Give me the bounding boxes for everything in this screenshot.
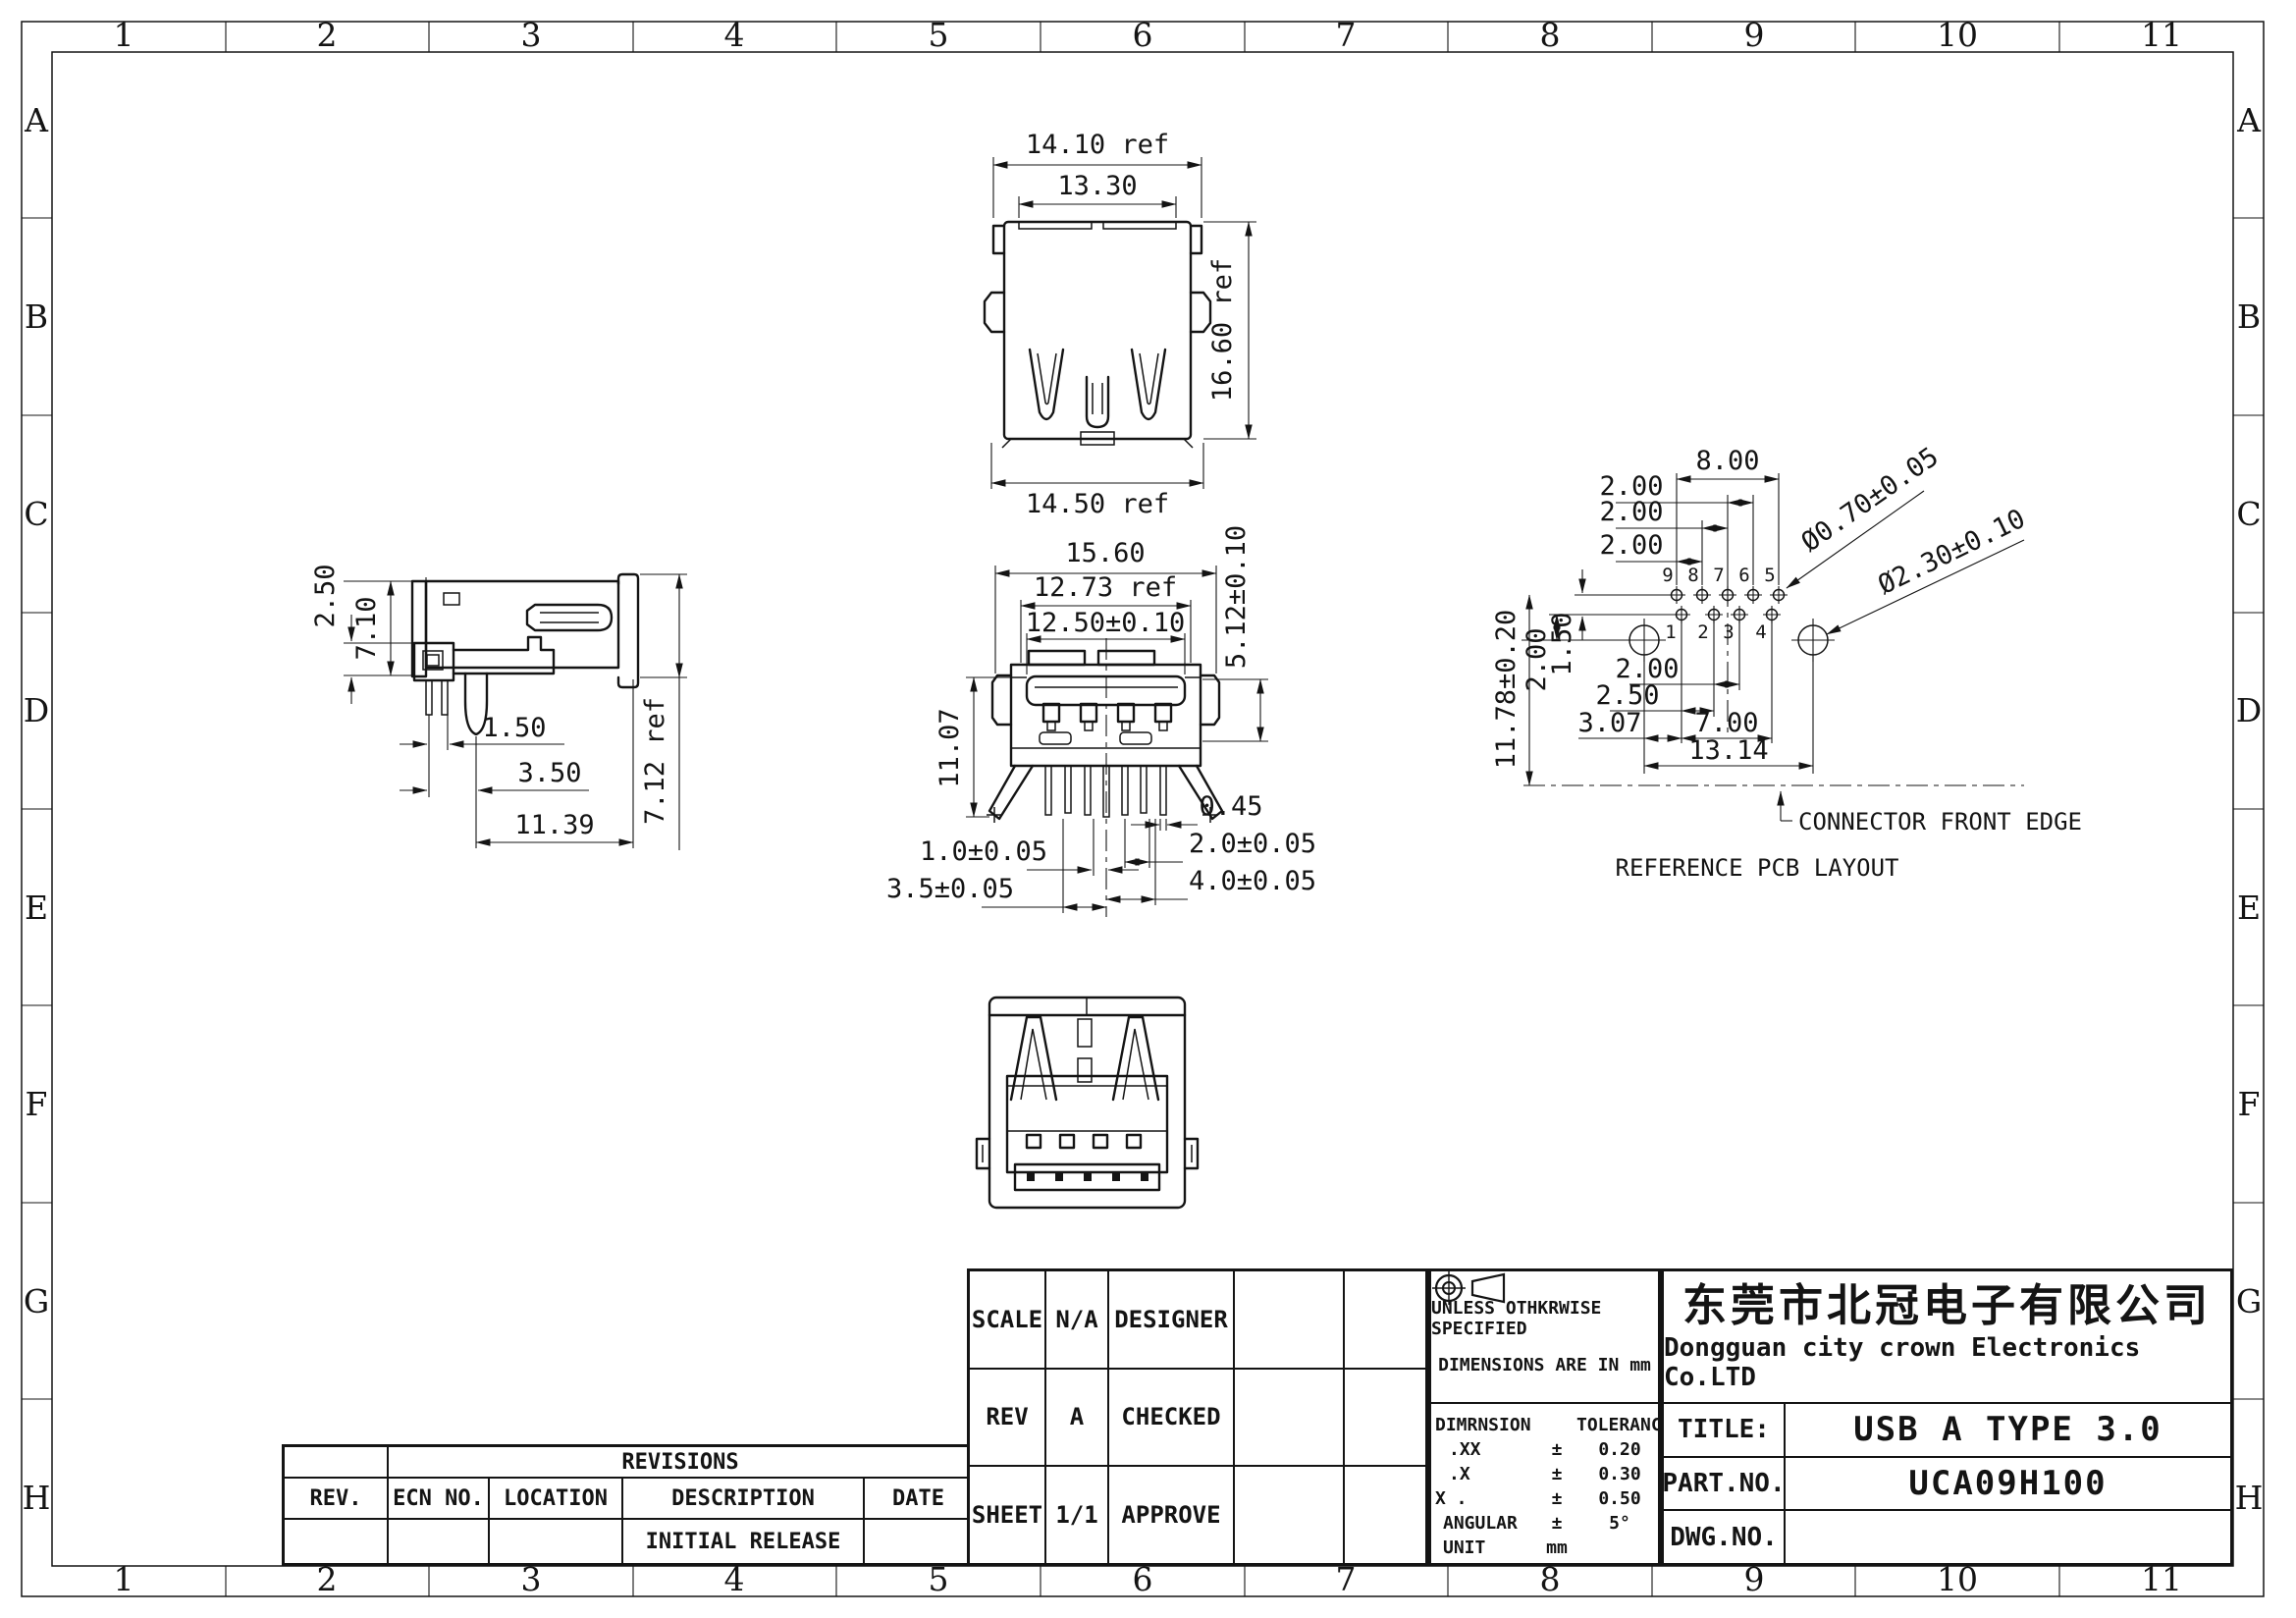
dim-label: 14.50 ref (1026, 489, 1169, 519)
dim-label: 12.50±0.10 (1026, 608, 1186, 638)
revisions-diagonal-cell (285, 1447, 387, 1477)
dim-label: 3.50 (517, 758, 581, 788)
title-block-approvals: SCALE N/A DESIGNER REV A CHECKED SHEET 1… (967, 1268, 1428, 1566)
grid-row-label: F (2238, 1085, 2261, 1123)
revisions-header-rev: REV. (285, 1479, 387, 1518)
company-name-cn: 东莞市北冠电子有限公司 (1682, 1281, 2212, 1330)
grid-row-label: B (25, 297, 48, 336)
grid-col-label: 2 (317, 16, 338, 54)
dim-label: Ø2.30±0.10 (1873, 504, 2030, 601)
pcb-layout-caption: REFERENCE PCB LAYOUT (1616, 854, 1899, 882)
company-name-en: Dongguan city crown Electronics Co.LTD (1664, 1333, 2230, 1392)
revision-cell-description: INITIAL RELEASE (623, 1520, 863, 1563)
grid-row-label: C (24, 495, 48, 533)
pin-number: 9 (1662, 565, 1673, 586)
spec-line-2: DIMENSIONS ARE IN mm (1438, 1355, 1651, 1375)
pin-number: 4 (1755, 621, 1766, 643)
dim-label: 2.0±0.05 (1189, 829, 1316, 859)
revision-cell-ecn (389, 1520, 488, 1563)
approve-signature-cell (1235, 1467, 1343, 1563)
tol-row-value: 0.30 (1576, 1464, 1658, 1484)
grid-row-label: D (24, 691, 49, 729)
tol-row-value: 0.20 (1576, 1439, 1658, 1460)
grid-row-label: C (2236, 495, 2261, 533)
dim-label: 2.00 (1522, 627, 1552, 691)
tol-row-pm: mm (1537, 1537, 1576, 1558)
approve-label: APPROVE (1109, 1467, 1233, 1563)
dwg-no-value (1786, 1511, 2230, 1563)
revision-cell-rev (285, 1520, 387, 1563)
sheet-value: 1/1 (1046, 1467, 1107, 1563)
rev-label: REV (970, 1370, 1044, 1466)
title-value: USB A TYPE 3.0 (1786, 1404, 2230, 1456)
dwg-no-label: DWG.NO. (1664, 1511, 1784, 1563)
pin-number: 6 (1738, 565, 1749, 586)
dim-label: 4.0±0.05 (1189, 866, 1316, 896)
dim-label: 15.60 (1065, 538, 1145, 568)
grid-col-label: 10 (1937, 16, 1978, 54)
dim-label: 2.50 (1595, 680, 1659, 711)
pin-number: 1 (1665, 621, 1676, 643)
dim-label: 13.30 (1057, 171, 1137, 201)
dim-label: 1.50 (482, 713, 546, 743)
scale-value: N/A (1046, 1271, 1107, 1368)
title-block-identification: 东莞市北冠电子有限公司 Dongguan city crown Electron… (1661, 1268, 2233, 1566)
tol-row-dim: X . (1435, 1488, 1537, 1509)
grid-row-label: E (2237, 889, 2261, 927)
dim-label: 2.00 (1599, 497, 1663, 527)
pin-number: 2 (1697, 621, 1708, 643)
checked-label: CHECKED (1109, 1370, 1233, 1466)
title-block-tolerances: UNLESS OTHKRWISE SPECIFIED DIMENSIONS AR… (1428, 1268, 1661, 1566)
grid-row-label: B (2237, 297, 2261, 336)
sheet-label: SHEET (970, 1467, 1044, 1563)
revisions-header-ecn: ECN NO. (389, 1479, 488, 1518)
view-pcb-layout: 9 8 7 6 5 1 2 3 4 8.00 2.00 2.00 2.00 1.… (1491, 442, 2082, 882)
dim-label: 3.5±0.05 (886, 874, 1014, 904)
tol-row-pm: ± (1537, 1488, 1576, 1509)
revision-cell-location (490, 1520, 621, 1563)
view-side-connector: 2.50 7.10 1.50 3.50 11.39 7.12 ref (310, 564, 687, 850)
dim-label: 16.60 ref (1207, 258, 1238, 402)
front-edge-label: CONNECTOR FRONT EDGE (1798, 808, 2082, 836)
designer-date-cell (1345, 1271, 1425, 1368)
tol-row-dim: UNIT (1435, 1537, 1537, 1558)
grid-row-label: A (2236, 101, 2262, 139)
view-front-connector: 15.60 12.73 ref 12.50±0.10 5.12±0.10 11.… (886, 525, 1316, 917)
part-no-label: PART.NO. (1664, 1458, 1784, 1510)
grid-col-label: 8 (1540, 16, 1561, 54)
revisions-header-location: LOCATION (490, 1479, 621, 1518)
grid-row-label: G (24, 1282, 49, 1321)
dim-label: 11.39 (514, 810, 594, 840)
title-label: TITLE: (1664, 1404, 1784, 1456)
revisions-header-description: DESCRIPTION (623, 1479, 863, 1518)
grid-col-label: 4 (724, 16, 745, 54)
tol-row-pm: ± (1537, 1439, 1576, 1460)
company-block: 东莞市北冠电子有限公司 Dongguan city crown Electron… (1664, 1271, 2230, 1402)
scale-label: SCALE (970, 1271, 1044, 1368)
checked-signature-cell (1235, 1370, 1343, 1466)
designer-signature-cell (1235, 1271, 1343, 1368)
grid-row-label: H (2235, 1479, 2264, 1517)
grid-row-label: F (26, 1085, 48, 1123)
grid-col-label: 5 (929, 16, 949, 54)
approve-date-cell (1345, 1467, 1425, 1563)
dim-label: 0.45 (1199, 791, 1262, 822)
dim-label: 7.00 (1694, 708, 1758, 738)
dim-label: 11.07 (934, 708, 965, 787)
tol-row-pm: ± (1537, 1513, 1576, 1534)
grid-row-label: E (25, 889, 48, 927)
view-rear-connector: 14.10 ref 13.30 16.60 ref 14.50 ref (985, 130, 1256, 519)
dim-label: Ø0.70±0.05 (1796, 442, 1945, 559)
dim-label: 8.00 (1695, 446, 1759, 476)
tolerance-header-tolerance: TOLERANCE (1576, 1415, 1658, 1435)
tol-row-pm: ± (1537, 1464, 1576, 1484)
view-mating-face (977, 998, 1198, 1208)
designer-label: DESIGNER (1109, 1271, 1233, 1368)
tol-row-value: 0.50 (1576, 1488, 1658, 1509)
grid-col-label: 1 (114, 16, 134, 54)
pin-number: 5 (1764, 565, 1775, 586)
tol-row-dim: .XX (1435, 1439, 1537, 1460)
dim-label: 14.10 ref (1026, 130, 1169, 160)
pin-number: 8 (1687, 565, 1698, 586)
grid-col-label: 3 (521, 16, 542, 54)
rev-value: A (1046, 1370, 1107, 1466)
dim-label: 5.12±0.10 (1221, 525, 1252, 669)
grid-col-label: 1 (114, 1560, 134, 1598)
revisions-table: REVISIONS REV. ECN NO. LOCATION DESCRIPT… (282, 1444, 975, 1566)
revisions-header-date: DATE (865, 1479, 972, 1518)
tol-row-dim: .X (1435, 1464, 1537, 1484)
checked-date-cell (1345, 1370, 1425, 1466)
dim-label: 1.0±0.05 (920, 836, 1047, 867)
part-no-value: UCA09H100 (1786, 1458, 2230, 1510)
grid-col-label: 6 (1133, 16, 1153, 54)
grid-col-label: 11 (2141, 16, 2182, 54)
dim-label: 12.73 ref (1034, 572, 1177, 603)
tol-row-dim: ANGULAR (1435, 1513, 1537, 1534)
grid-row-label: A (24, 101, 49, 139)
dim-label: 2.00 (1599, 530, 1663, 561)
grid-col-label: 7 (1336, 16, 1357, 54)
drawing-sheet: 1 2 3 4 5 6 7 8 9 10 11 1 2 3 4 5 6 7 8 … (0, 0, 2296, 1618)
grid-row-label: H (23, 1479, 51, 1517)
dim-label: 13.14 (1688, 735, 1768, 766)
dim-label: 11.78±0.20 (1491, 610, 1522, 770)
dim-label: 3.07 (1577, 708, 1641, 738)
grid-row-label: G (2236, 1282, 2262, 1321)
tol-row-value: 5° (1576, 1513, 1658, 1534)
pin-number: 3 (1723, 621, 1734, 643)
dim-label: 2.50 (310, 564, 341, 627)
grid-row-label: D (2236, 691, 2262, 729)
revision-cell-date (865, 1520, 972, 1563)
pin-number: 7 (1713, 565, 1724, 586)
dim-label: 7.10 (351, 596, 382, 660)
grid-col-label: 9 (1744, 16, 1765, 54)
dim-label: 7.12 ref (640, 697, 670, 825)
tolerance-table: DIMRNSION TOLERANCE .XX ± 0.20 .X ± 0.30… (1431, 1404, 1658, 1563)
revisions-title: REVISIONS (389, 1447, 972, 1477)
tolerance-header-dimension: DIMRNSION (1435, 1415, 1537, 1435)
